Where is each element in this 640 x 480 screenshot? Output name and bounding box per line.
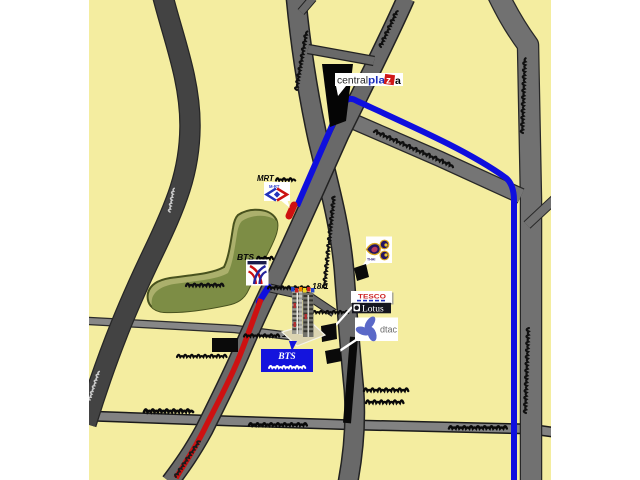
svg-text:dtac: dtac [380, 325, 398, 335]
svg-text:z: z [386, 76, 391, 87]
svg-text:TESCO: TESCO [358, 294, 386, 301]
svg-text:central: central [337, 76, 368, 87]
svg-text:BTS: BTS [277, 352, 295, 362]
svg-text:pla: pla [368, 76, 386, 87]
svg-text:18/1: 18/1 [312, 281, 329, 291]
svg-text:MRT: MRT [257, 174, 275, 183]
svg-text:Lotus: Lotus [362, 305, 384, 315]
svg-text:THAI: THAI [367, 258, 375, 262]
svg-text:a: a [395, 75, 401, 87]
